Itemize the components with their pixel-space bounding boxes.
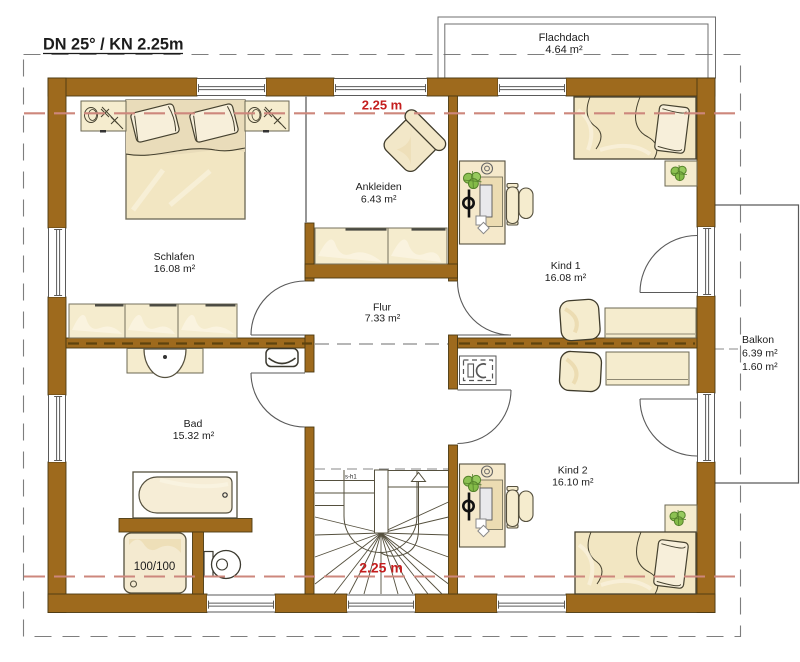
svg-text:15.32 m²: 15.32 m² [173,430,215,442]
svg-text:Kind 2: Kind 2 [558,465,588,477]
svg-text:Kind 1: Kind 1 [551,260,581,272]
svg-text:1.60 m²: 1.60 m² [742,361,778,373]
svg-text:4.64 m²: 4.64 m² [545,44,583,56]
svg-text:16.08 m²: 16.08 m² [154,263,196,275]
svg-text:s-h1: s-h1 [345,475,357,481]
svg-text:DN 25° / KN 2.25m: DN 25° / KN 2.25m [43,36,183,54]
svg-text:7.33 m²: 7.33 m² [365,312,401,324]
svg-text:Schlafen: Schlafen [154,251,195,263]
svg-text:6.39 m²: 6.39 m² [742,348,778,360]
svg-text:2.25 m: 2.25 m [359,560,403,576]
svg-text:Balkon: Balkon [742,334,774,346]
svg-text:100/100: 100/100 [134,561,176,573]
svg-text:16.08 m²: 16.08 m² [545,272,587,284]
svg-text:Flachdach: Flachdach [539,32,590,44]
svg-text:6.43 m²: 6.43 m² [361,194,397,206]
svg-text:Ankleiden: Ankleiden [356,181,402,193]
svg-text:16.10 m²: 16.10 m² [552,476,594,488]
svg-text:2.25 m: 2.25 m [362,98,402,113]
svg-text:Bad: Bad [184,418,203,430]
